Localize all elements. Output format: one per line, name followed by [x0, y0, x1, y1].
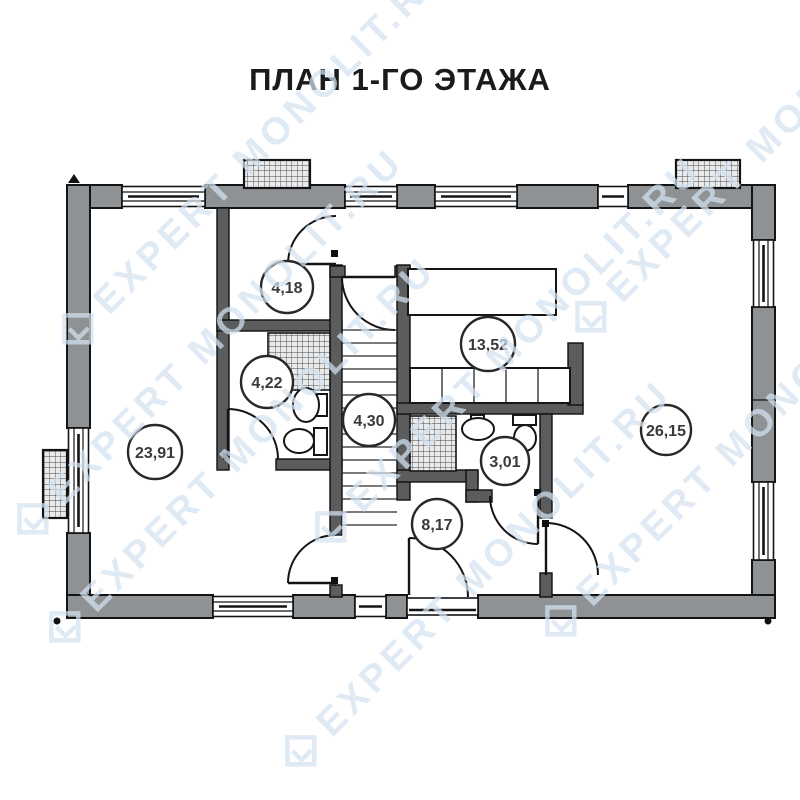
window — [213, 597, 293, 617]
window — [754, 240, 774, 307]
svg-text:3,01: 3,01 — [489, 454, 520, 471]
svg-text:23,91: 23,91 — [135, 445, 175, 462]
floor-plan-page: ПЛАН 1-ГО ЭТАЖА — [0, 0, 800, 800]
window — [355, 597, 386, 617]
room-label-hallway: 8,17 — [412, 499, 462, 549]
window — [598, 187, 628, 207]
window — [435, 187, 517, 207]
svg-text:4,30: 4,30 — [353, 413, 384, 430]
window — [754, 482, 774, 560]
svg-text:8,17: 8,17 — [421, 517, 452, 534]
floor-plan: 4,18 4,22 4,30 13,52 3,01 8,17 23,91 26,… — [0, 0, 800, 800]
room-label-bathroom: 3,01 — [481, 437, 529, 485]
room-label-stair-hall: 4,30 — [343, 394, 395, 446]
